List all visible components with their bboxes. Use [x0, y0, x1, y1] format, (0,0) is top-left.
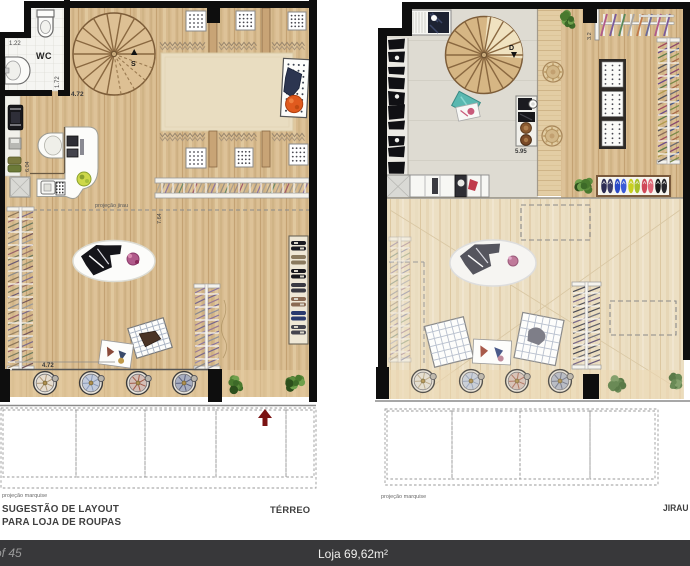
svg-text:3.2: 3.2	[587, 32, 593, 40]
svg-text:of 45: of 45	[0, 546, 22, 560]
svg-text:SUGESTÃO DE LAYOUT: SUGESTÃO DE LAYOUT	[2, 504, 119, 515]
svg-text:TÉRREO: TÉRREO	[270, 504, 310, 515]
svg-text:PARA LOJA DE ROUPAS: PARA LOJA DE ROUPAS	[2, 517, 121, 528]
svg-text:Loja 69,62m²: Loja 69,62m²	[318, 547, 388, 561]
svg-text:6.04: 6.04	[25, 161, 31, 172]
svg-text:JIRAU: JIRAU	[663, 503, 689, 513]
svg-text:1.72: 1.72	[55, 76, 61, 88]
svg-text:WC: WC	[36, 51, 52, 61]
svg-text:5.95: 5.95	[515, 149, 527, 155]
svg-text:1.22: 1.22	[9, 41, 21, 47]
svg-text:S: S	[131, 61, 136, 68]
svg-text:projeção jirau: projeção jirau	[95, 203, 128, 209]
svg-text:D: D	[509, 45, 514, 52]
svg-text:projeção marquise: projeção marquise	[2, 493, 47, 499]
svg-text:4.72: 4.72	[42, 363, 54, 369]
svg-text:7.64: 7.64	[157, 213, 163, 224]
svg-text:4.72: 4.72	[71, 91, 84, 98]
svg-text:projeção marquise: projeção marquise	[381, 494, 426, 500]
